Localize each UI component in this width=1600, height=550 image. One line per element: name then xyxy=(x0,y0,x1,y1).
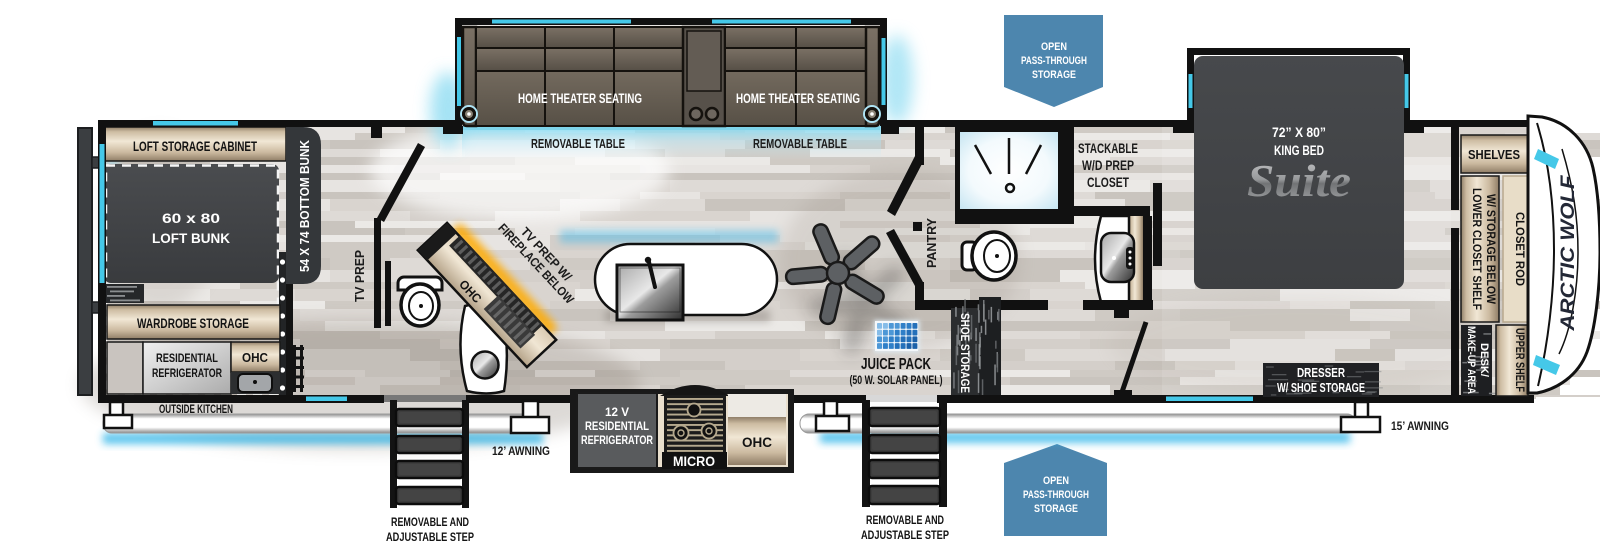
svg-text:OHC: OHC xyxy=(242,350,269,365)
svg-text:JUICE PACK: JUICE PACK xyxy=(861,356,932,373)
svg-text:STORAGE: STORAGE xyxy=(1034,503,1078,515)
svg-text:ARCTIC WOLF: ARCTIC WOLF xyxy=(1558,174,1579,332)
svg-text:REMOVABLE AND: REMOVABLE AND xyxy=(391,515,469,529)
svg-text:MAKE-UP AREA: MAKE-UP AREA xyxy=(1465,326,1477,394)
svg-text:PASS-THROUGH: PASS-THROUGH xyxy=(1021,55,1087,67)
svg-text:RESIDENTIAL: RESIDENTIAL xyxy=(156,351,218,365)
svg-text:PASS-THROUGH: PASS-THROUGH xyxy=(1023,489,1089,501)
svg-text:REMOVABLE TABLE: REMOVABLE TABLE xyxy=(531,136,625,151)
svg-text:W/D PREP: W/D PREP xyxy=(1082,158,1134,173)
svg-text:W/ STORAGE BELOW: W/ STORAGE BELOW xyxy=(1484,194,1496,304)
svg-text:DESK/: DESK/ xyxy=(1478,343,1490,377)
svg-text:ADJUSTABLE STEP: ADJUSTABLE STEP xyxy=(386,530,474,544)
svg-text:PANTRY: PANTRY xyxy=(925,217,939,268)
svg-text:ADJUSTABLE STEP: ADJUSTABLE STEP xyxy=(861,528,949,542)
svg-text:15’ AWNING: 15’ AWNING xyxy=(1391,419,1449,433)
svg-text:LOFT BUNK: LOFT BUNK xyxy=(152,230,230,246)
svg-text:WARDROBE STORAGE: WARDROBE STORAGE xyxy=(137,315,249,331)
svg-text:72” X 80”: 72” X 80” xyxy=(1272,125,1326,140)
svg-text:UPPER SHELF: UPPER SHELF xyxy=(1513,328,1525,392)
svg-text:MICRO: MICRO xyxy=(673,454,715,469)
svg-text:OUTSIDE KITCHEN: OUTSIDE KITCHEN xyxy=(159,404,233,416)
svg-text:OHC: OHC xyxy=(742,434,772,450)
svg-text:STORAGE: STORAGE xyxy=(1032,69,1076,81)
svg-text:RESIDENTIAL: RESIDENTIAL xyxy=(585,421,649,433)
svg-text:DRESSER: DRESSER xyxy=(1297,366,1345,380)
svg-text:HOME THEATER SEATING: HOME THEATER SEATING xyxy=(518,91,642,106)
svg-text:STACKABLE: STACKABLE xyxy=(1078,141,1138,156)
svg-text:OPEN: OPEN xyxy=(1041,41,1067,53)
svg-text:54 X 74 BOTTOM BUNK: 54 X 74 BOTTOM BUNK xyxy=(297,139,312,272)
svg-text:CLOSET: CLOSET xyxy=(1087,175,1130,190)
svg-text:REMOVABLE TABLE: REMOVABLE TABLE xyxy=(753,136,847,151)
svg-text:LOFT STORAGE CABINET: LOFT STORAGE CABINET xyxy=(133,138,257,154)
svg-text:LOWER CLOSET SHELF: LOWER CLOSET SHELF xyxy=(1470,188,1482,310)
svg-text:REFRIGERATOR: REFRIGERATOR xyxy=(581,435,654,447)
svg-text:60 x 80: 60 x 80 xyxy=(162,210,220,226)
svg-text:(50 W. SOLAR PANEL): (50 W. SOLAR PANEL) xyxy=(850,375,943,387)
svg-text:REMOVABLE AND: REMOVABLE AND xyxy=(866,513,944,527)
svg-text:TV PREP: TV PREP xyxy=(353,250,367,302)
svg-text:Suite: Suite xyxy=(1247,155,1351,206)
svg-text:REFRIGERATOR: REFRIGERATOR xyxy=(152,366,222,380)
svg-text:SHELVES: SHELVES xyxy=(1468,148,1520,162)
svg-text:SHOE STORAGE: SHOE STORAGE xyxy=(958,313,972,393)
svg-text:OPEN: OPEN xyxy=(1043,475,1069,487)
svg-text:12’ AWNING: 12’ AWNING xyxy=(492,444,550,458)
svg-text:HOME THEATER SEATING: HOME THEATER SEATING xyxy=(736,91,860,106)
svg-text:W/ SHOE STORAGE: W/ SHOE STORAGE xyxy=(1277,381,1365,395)
svg-text:CLOSET ROD: CLOSET ROD xyxy=(1513,212,1525,286)
svg-text:12 V: 12 V xyxy=(605,407,629,419)
